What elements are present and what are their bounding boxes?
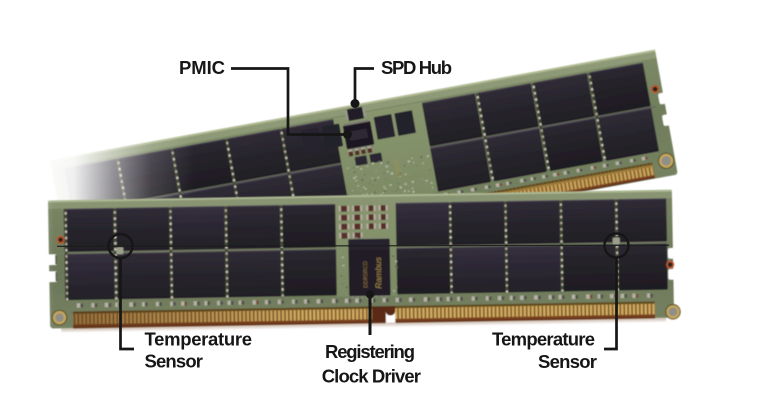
- svg-text:Temperature: Temperature: [492, 329, 595, 350]
- svg-text:Temperature: Temperature: [145, 329, 253, 350]
- svg-text:Clock Driver: Clock Driver: [322, 366, 421, 387]
- svg-text:Sensor: Sensor: [145, 351, 204, 372]
- svg-text:SPD Hub: SPD Hub: [381, 57, 452, 78]
- svg-text:Sensor: Sensor: [538, 351, 597, 372]
- svg-text:Registering: Registering: [325, 341, 415, 362]
- svg-text:DDR5RCD: DDR5RCD: [363, 261, 369, 288]
- svg-text:Rambus: Rambus: [373, 256, 384, 289]
- svg-text:PMIC: PMIC: [179, 57, 225, 78]
